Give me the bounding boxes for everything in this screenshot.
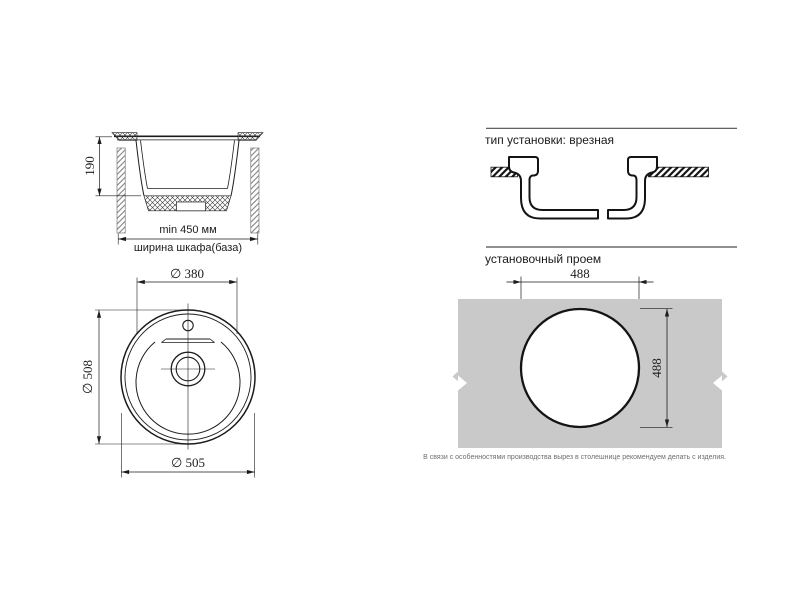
technical-drawing-sheet: 190 min 450 мм ширина шкафа(база) ∅ 380 … [0,0,800,600]
outer-diameter-vertical-label: ∅ 508 [81,360,95,394]
depth-dimension-label: 190 [83,156,97,176]
install-type-title: тип установки: врезная [485,134,614,147]
cabinet-width-label: ширина шкафа(база) [134,242,242,254]
cabinet-wall-right [251,148,259,233]
dimension-508 [95,310,188,444]
outer-diameter-horizontal-label: ∅ 505 [171,456,205,470]
cutout-drawing [452,247,737,448]
rim-flange-right [238,133,263,141]
line-art [0,0,800,600]
bowl-diameter-label: ∅ 380 [170,267,204,281]
sink-profile-left [509,157,598,219]
sink-profile-right [608,157,657,219]
drain-recess [177,202,206,211]
cutout-title: установочный проем [485,253,601,266]
rim-flange-left [112,133,137,141]
cutout-width-label: 488 [570,267,590,281]
cutout-circle [521,309,639,427]
cutout-height-label: 488 [649,358,663,378]
cabinet-min-width-label: min 450 мм [159,223,216,235]
production-note: В связи с особенностями производства выр… [420,454,726,462]
cabinet-wall-left [117,148,125,233]
sink-top-view-drawing [95,278,255,478]
